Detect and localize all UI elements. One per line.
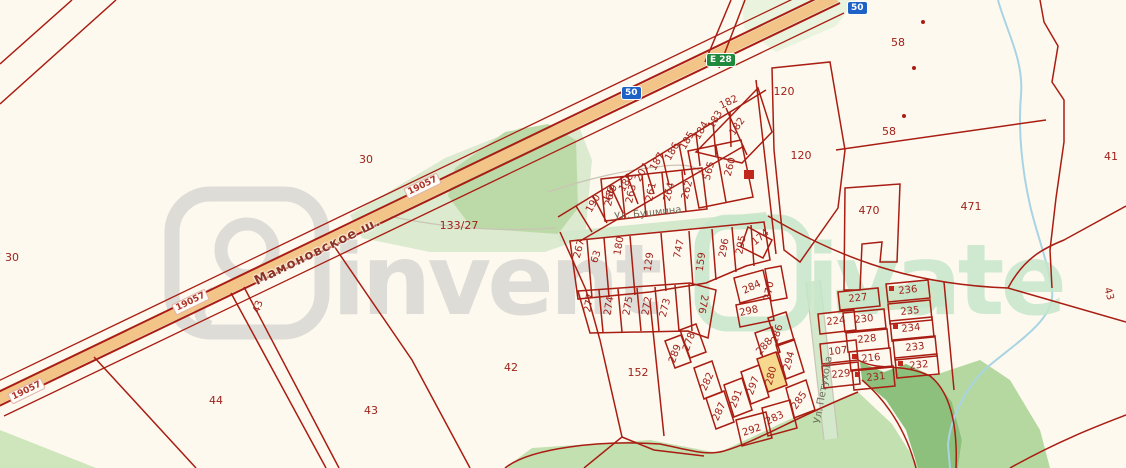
parcel-label-233[interactable]: 233 — [905, 342, 925, 354]
parcel-label-276[interactable]: 276 — [695, 294, 708, 315]
parcel-label-228[interactable]: 228 — [857, 334, 877, 346]
boundary-58-division — [836, 120, 1046, 150]
parcel-label-224[interactable]: 224 — [826, 316, 846, 328]
parcel-label-231[interactable]: 231 — [866, 372, 886, 384]
boundary-topleft — [0, 0, 116, 104]
building-icon — [889, 286, 894, 291]
parcel-label-227[interactable]: 227 — [848, 293, 868, 305]
survey-dot — [921, 20, 925, 24]
parcel-label-120[interactable]: 120 — [791, 151, 812, 161]
survey-dot — [902, 114, 906, 118]
parcel-label-232[interactable]: 232 — [909, 360, 929, 372]
cadastral-map-canvas[interactable]: invent ivate — [0, 0, 1126, 468]
parcel-label-470[interactable]: 470 — [859, 206, 880, 216]
parcel-label-235[interactable]: 235 — [900, 306, 920, 318]
parcel-label-41[interactable]: 41 — [1104, 152, 1118, 162]
parcel-label-43[interactable]: 43 — [364, 406, 378, 416]
parcel-label-152[interactable]: 152 — [628, 368, 649, 378]
parcel-label-236[interactable]: 236 — [898, 285, 918, 297]
parcel-label-30[interactable]: 30 — [5, 253, 19, 263]
parcel-label-120[interactable]: 120 — [774, 87, 795, 97]
forest-area-bottom — [505, 392, 920, 468]
parcel-label-44[interactable]: 44 — [209, 396, 223, 406]
parcel-label-42[interactable]: 42 — [504, 363, 518, 373]
building-icon — [744, 170, 754, 179]
road-number-badge: 50 — [621, 86, 642, 100]
road-number-badge: 50 — [847, 1, 868, 15]
parcel-label-234[interactable]: 234 — [901, 323, 921, 335]
map-vector-layer: invent ivate — [0, 0, 1126, 468]
parcel-label-216[interactable]: 216 — [861, 353, 881, 365]
parcel-label-30[interactable]: 30 — [359, 155, 373, 165]
parcel-label-107[interactable]: 107 — [828, 346, 848, 358]
building-icon — [893, 324, 898, 329]
building-icon — [898, 361, 903, 366]
parcel-label-230[interactable]: 230 — [854, 314, 874, 326]
parcel-label-58[interactable]: 58 — [891, 38, 905, 48]
parcel-label-229[interactable]: 229 — [831, 369, 851, 381]
parcel-label-471[interactable]: 471 — [961, 202, 982, 212]
survey-dot — [912, 66, 916, 70]
highway-parallel-lower — [4, 13, 844, 416]
parcel-label-58[interactable]: 58 — [882, 127, 896, 137]
parcel-label-43[interactable]: 43 — [1102, 287, 1115, 302]
building-icon — [855, 372, 860, 377]
field-green-corner — [0, 430, 96, 468]
building-icon — [852, 354, 857, 359]
route-e28-badge: E 28 — [706, 53, 736, 67]
parcel-label-133-27[interactable]: 133/27 — [440, 221, 479, 231]
watermark-text-left: invent — [332, 224, 660, 338]
